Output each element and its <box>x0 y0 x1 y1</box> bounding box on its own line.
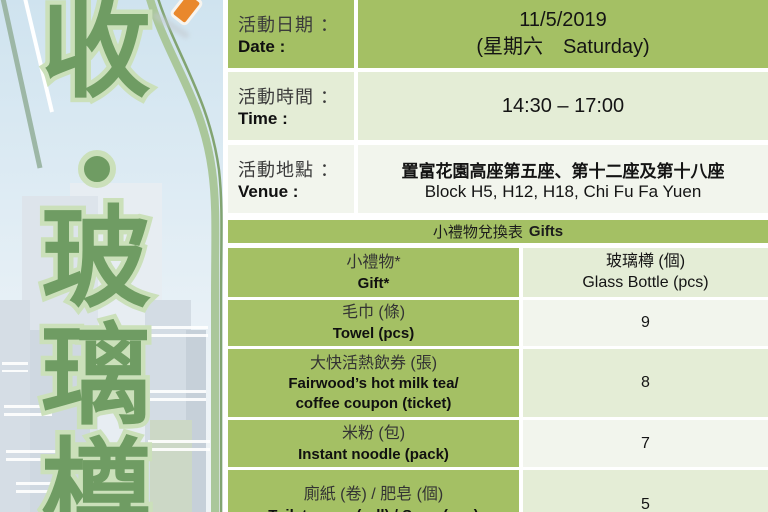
flyer-poster: 收 收 玻 玻 璃 璃 樽 樽 活動日期 ： Date : 11/5/2019 … <box>0 0 768 512</box>
gift-en: Fairwood’s hot milk tea/ <box>288 374 458 394</box>
qty-value: 8 <box>641 374 650 392</box>
headline-char-shou: 收 收 <box>0 0 196 105</box>
date-label-en: Date : <box>238 37 285 57</box>
gift-cell: 毛巾 (條) Towel (pcs) <box>228 300 523 346</box>
gift-col-header: 小禮物* Gift* <box>228 248 523 297</box>
gifts-title-zh: 小禮物兌換表 <box>433 221 523 242</box>
gift-col-header-en: Gift* <box>358 274 390 294</box>
venue-value-zh: 置富花園高座第五座、第十二座及第十八座 <box>402 157 725 182</box>
gifts-header-row: 小禮物* Gift* 玻璃樽 (個) Glass Bottle (pcs) <box>228 248 768 297</box>
gifts-title-en: Gifts <box>529 223 563 240</box>
time-label-en: Time : <box>238 109 288 129</box>
headline-char-bo: 玻 玻 <box>0 205 196 315</box>
gift-cell: 廁紙 (卷) / 肥皂 (個) Toilet paper (roll) / So… <box>228 470 523 512</box>
gift-en: Towel (pcs) <box>333 324 414 344</box>
venue-label-en: Venue : <box>238 182 298 202</box>
headline-char-zun: 樽 樽 <box>0 437 196 512</box>
date-value: 11/5/2019 <box>519 7 607 34</box>
gift-zh: 毛巾 (條) <box>342 302 405 324</box>
gifts-table-title: 小禮物兌換表 Gifts <box>228 220 768 243</box>
date-label-zh: 活動日期 ： <box>238 11 339 37</box>
headline-dot <box>78 150 116 188</box>
bottle-col-header-en: Glass Bottle (pcs) <box>582 273 708 294</box>
date-weekday: (星期六 Saturday) <box>476 34 649 61</box>
qty-cell: 7 <box>523 420 768 467</box>
time-value-cell: 14:30 – 17:00 <box>358 72 768 140</box>
date-label-cell: 活動日期 ： Date : <box>228 0 358 68</box>
time-label-zh: 活動時間 ： <box>238 83 339 109</box>
bottle-col-header: 玻璃樽 (個) Glass Bottle (pcs) <box>523 248 768 297</box>
qty-value: 9 <box>641 314 650 332</box>
venue-label-cell: 活動地點 ： Venue : <box>228 145 358 213</box>
venue-row: 活動地點 ： Venue : 置富花園高座第五座、第十二座及第十八座 Block… <box>228 145 768 213</box>
venue-value-en: Block H5, H12, H18, Chi Fu Fa Yuen <box>425 182 702 202</box>
venue-value-cell: 置富花園高座第五座、第十二座及第十八座 Block H5, H12, H18, … <box>358 145 768 213</box>
qty-cell: 5 <box>523 470 768 512</box>
qty-value: 5 <box>641 496 650 512</box>
date-row: 活動日期 ： Date : 11/5/2019 (星期六 Saturday) <box>228 0 768 68</box>
bottle-col-header-zh: 玻璃樽 (個) <box>606 251 685 273</box>
gift-cell: 大快活熱飲券 (張) Fairwood’s hot milk tea/ coff… <box>228 349 523 417</box>
event-info-table: 活動日期 ： Date : 11/5/2019 (星期六 Saturday) 活… <box>228 0 768 512</box>
qty-value: 7 <box>641 435 650 453</box>
gift-zh: 米粉 (包) <box>342 423 405 445</box>
time-label-cell: 活動時間 ： Time : <box>228 72 358 140</box>
gift-row-noodle: 米粉 (包) Instant noodle (pack) 7 <box>228 420 768 467</box>
qty-cell: 9 <box>523 300 768 346</box>
gift-en: Toilet paper (roll) / Soap (pcs) <box>268 506 479 512</box>
gift-cell: 米粉 (包) Instant noodle (pack) <box>228 420 523 467</box>
time-row: 活動時間 ： Time : 14:30 – 17:00 <box>228 72 768 140</box>
gift-row-towel: 毛巾 (條) Towel (pcs) 9 <box>228 300 768 346</box>
qty-cell: 8 <box>523 349 768 417</box>
date-value-cell: 11/5/2019 (星期六 Saturday) <box>358 0 768 68</box>
gift-row-toilet-paper: 廁紙 (卷) / 肥皂 (個) Toilet paper (roll) / So… <box>228 470 768 512</box>
gift-zh: 大快活熱飲券 (張) <box>310 353 437 375</box>
venue-label-zh: 活動地點 ： <box>238 156 339 182</box>
poster-art: 收 收 玻 玻 璃 璃 樽 樽 <box>0 0 223 512</box>
gift-en: Instant noodle (pack) <box>298 445 449 465</box>
gift-zh: 廁紙 (卷) / 肥皂 (個) <box>304 484 444 506</box>
time-value: 14:30 – 17:00 <box>502 93 624 120</box>
headline-char-li: 璃 璃 <box>0 322 196 432</box>
gift-row-fairwood: 大快活熱飲券 (張) Fairwood’s hot milk tea/ coff… <box>228 349 768 417</box>
gift-col-header-zh: 小禮物* <box>346 252 400 274</box>
gift-en2: coffee coupon (ticket) <box>296 394 452 414</box>
